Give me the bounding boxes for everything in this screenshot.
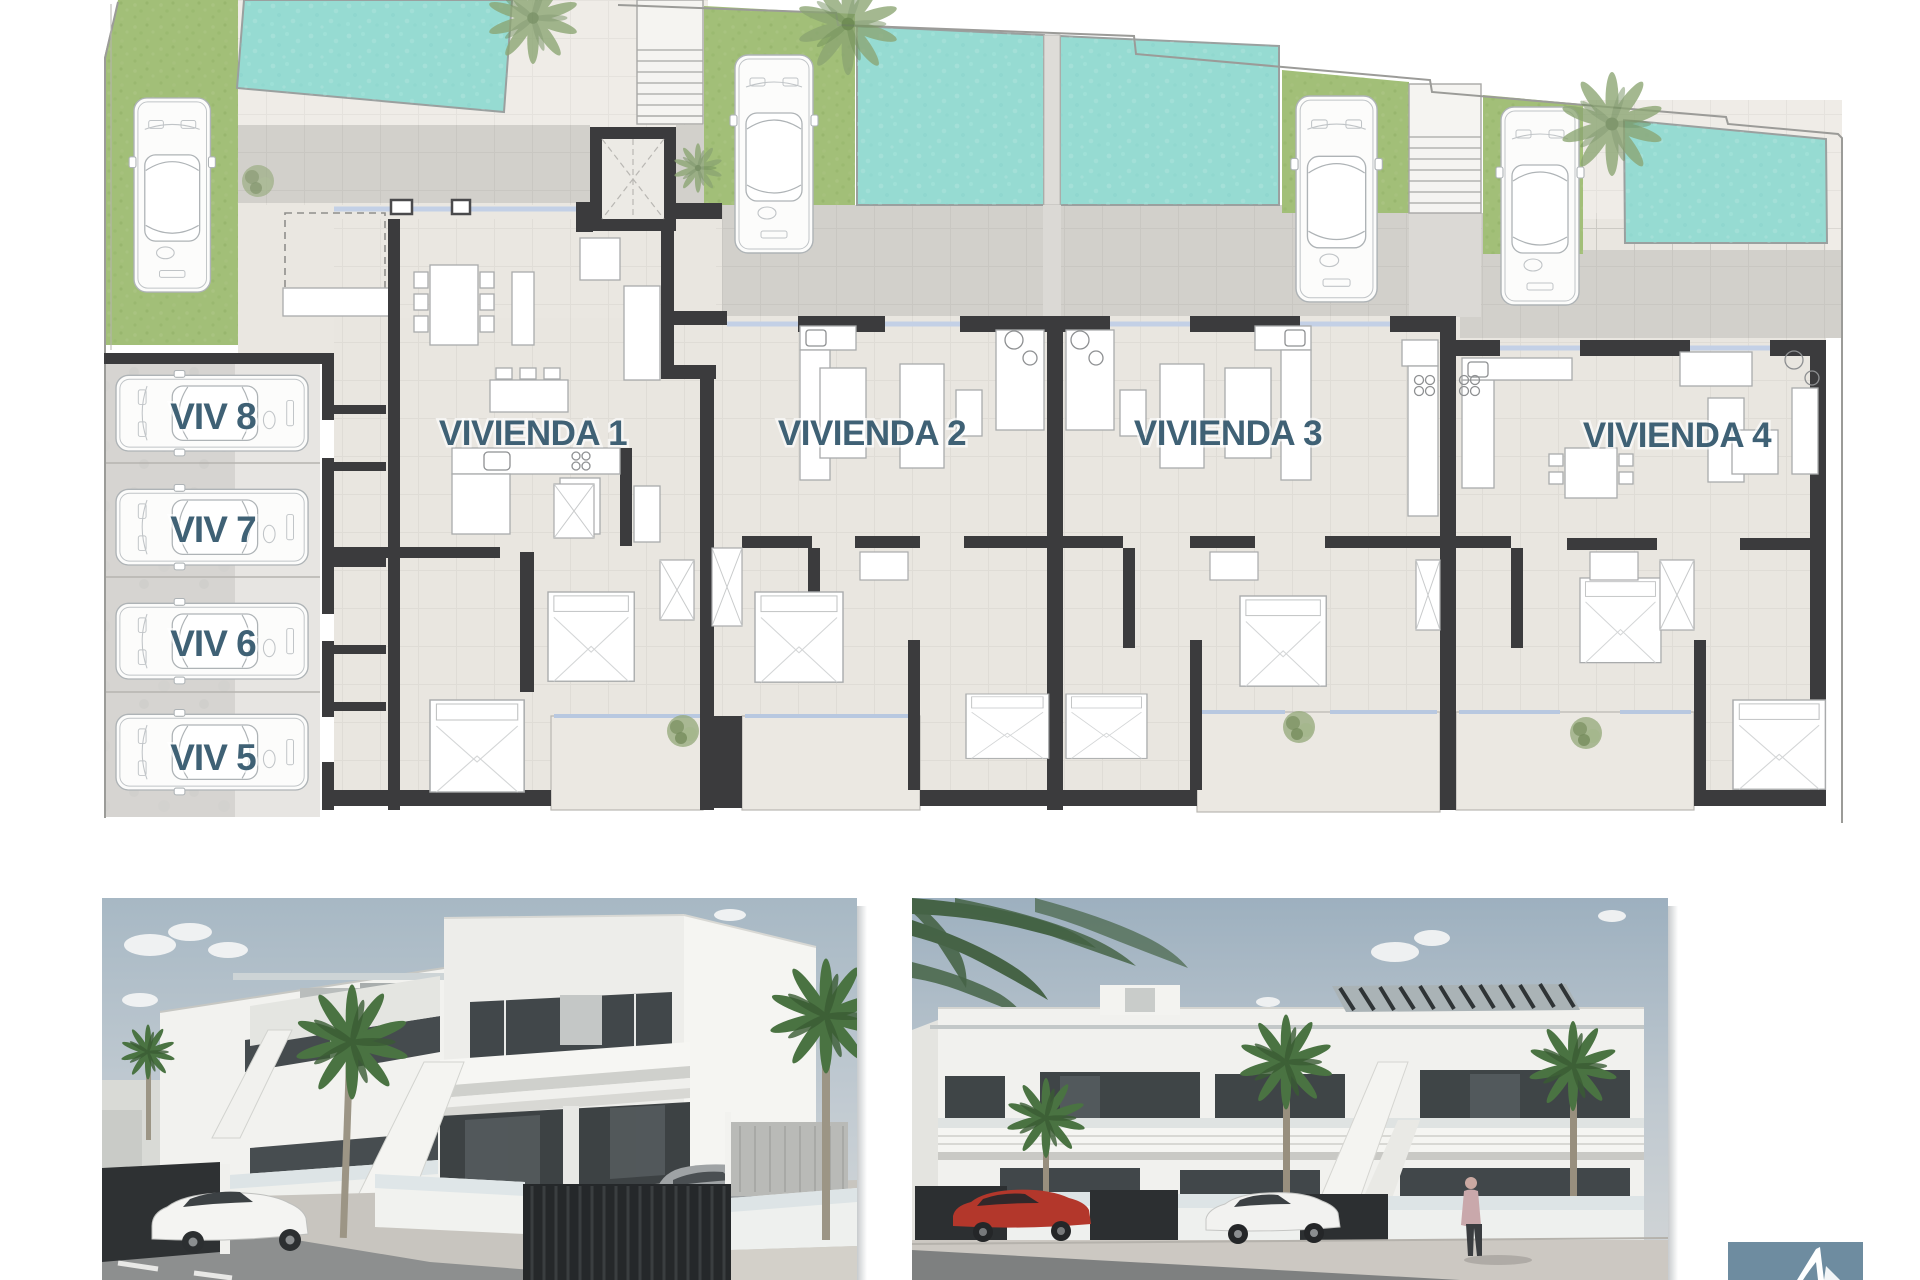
svg-text:VIV 6: VIV 6 xyxy=(170,623,256,664)
svg-text:VIVIENDA 1: VIVIENDA 1 xyxy=(439,414,627,453)
svg-text:VIV 8: VIV 8 xyxy=(170,396,256,437)
svg-text:VIV 7: VIV 7 xyxy=(170,509,256,550)
svg-text:VIVIENDA 2: VIVIENDA 2 xyxy=(778,414,966,453)
svg-text:VIVIENDA 3: VIVIENDA 3 xyxy=(1134,414,1322,453)
svg-text:VIVIENDA 4: VIVIENDA 4 xyxy=(1583,416,1772,455)
svg-text:VIV 5: VIV 5 xyxy=(170,737,256,778)
